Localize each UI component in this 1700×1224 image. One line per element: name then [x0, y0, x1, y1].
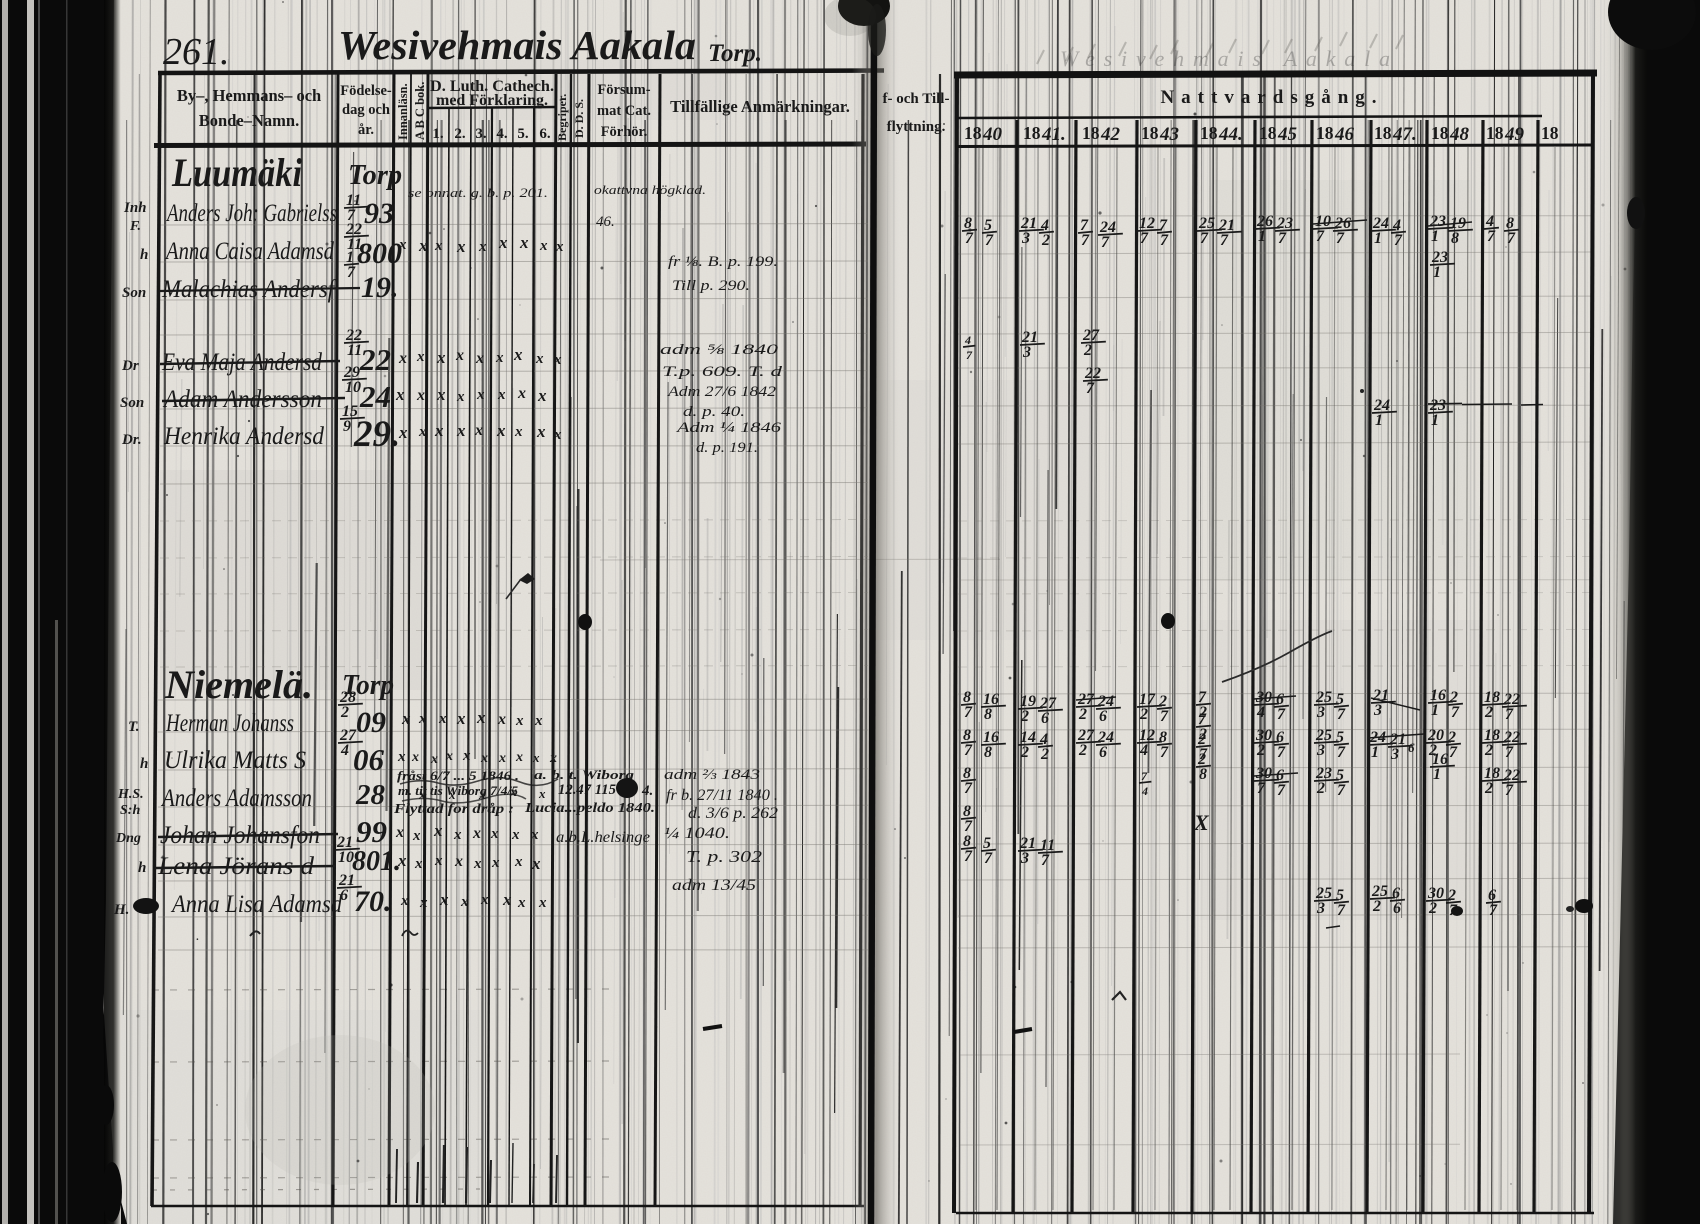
svg-text:18: 18 — [1374, 123, 1392, 143]
svg-text:99: 99 — [356, 814, 387, 849]
svg-text:x: x — [400, 893, 409, 909]
svg-text:x: x — [434, 853, 443, 869]
svg-text:Till p. 290.: Till p. 290. — [672, 278, 750, 294]
svg-text:7: 7 — [1141, 769, 1148, 783]
svg-text:1: 1 — [1374, 230, 1382, 247]
svg-text:Torp: Torp — [348, 159, 402, 191]
svg-text:x: x — [462, 748, 471, 764]
svg-text:med Förklaring.: med Förklaring. — [436, 92, 548, 109]
svg-text:x: x — [514, 854, 523, 870]
svg-text:261.: 261. — [163, 31, 230, 73]
svg-text:6: 6 — [340, 887, 348, 904]
svg-text:70.: 70. — [354, 885, 392, 918]
svg-text:T. p. 302: T. p. 302 — [686, 847, 763, 866]
svg-text:x: x — [397, 749, 406, 765]
svg-text:¼ 1040.: ¼ 1040. — [664, 825, 730, 842]
svg-text:7: 7 — [1220, 232, 1229, 249]
svg-text:7: 7 — [1257, 780, 1266, 797]
svg-text:3.: 3. — [475, 126, 487, 142]
svg-text:x: x — [416, 349, 425, 365]
svg-text:fr b. 27/11 1840 .: fr b. 27/11 1840 . — [666, 787, 778, 804]
svg-text:x: x — [534, 713, 543, 729]
svg-text:18: 18 — [1486, 123, 1504, 143]
svg-text:7: 7 — [1394, 232, 1403, 249]
svg-text:H.S.: H.S. — [117, 787, 144, 802]
svg-text:x: x — [478, 788, 486, 803]
svg-text:18: 18 — [1431, 123, 1449, 143]
svg-text:5.: 5. — [517, 126, 529, 142]
svg-text:2: 2 — [1040, 746, 1049, 763]
svg-text:06: 06 — [353, 742, 385, 777]
svg-text:29.: 29. — [353, 414, 400, 455]
svg-text:1: 1 — [1375, 412, 1383, 429]
svg-text:2: 2 — [1139, 706, 1148, 723]
svg-text:24: 24 — [359, 379, 391, 414]
svg-text:.: . — [196, 929, 200, 944]
svg-text:x: x — [418, 236, 428, 255]
svg-text:18: 18 — [1082, 123, 1100, 143]
svg-text:x: x — [473, 856, 482, 872]
svg-text:x: x — [509, 785, 517, 800]
svg-text:x: x — [495, 350, 504, 366]
svg-text:42: 42 — [1100, 124, 1121, 145]
svg-text:x: x — [530, 827, 539, 843]
svg-text:x: x — [513, 345, 523, 364]
svg-text:18: 18 — [964, 123, 982, 143]
svg-text:x: x — [414, 856, 423, 872]
svg-text:3: 3 — [1020, 850, 1029, 867]
svg-text:Herman Johanss: Herman Johanss — [165, 710, 294, 737]
svg-text:12.47 115: 12.47 115 — [558, 782, 616, 798]
svg-text:x: x — [497, 711, 506, 728]
svg-text:x: x — [474, 422, 483, 439]
svg-text:1: 1 — [1431, 702, 1439, 719]
svg-text:x: x — [436, 348, 446, 367]
svg-text:7: 7 — [1449, 744, 1458, 761]
svg-text:4: 4 — [964, 333, 971, 347]
svg-text:7: 7 — [966, 348, 973, 362]
svg-text:x: x — [539, 238, 548, 254]
svg-text:x: x — [480, 751, 488, 766]
svg-text:4: 4 — [1139, 742, 1148, 759]
svg-text:x: x — [455, 347, 464, 364]
svg-text:d. p. 40.: d. p. 40. — [683, 404, 745, 420]
svg-text:adm ⅔ 1843: adm ⅔ 1843 — [664, 767, 760, 783]
svg-text:46.: 46. — [596, 214, 615, 230]
svg-text:x: x — [436, 385, 446, 404]
svg-text:7: 7 — [1505, 706, 1514, 723]
svg-text:x: x — [555, 239, 564, 255]
svg-text:8: 8 — [1199, 766, 1207, 783]
svg-text:x: x — [478, 239, 487, 255]
svg-text:H.: H. — [113, 902, 129, 918]
svg-text:x: x — [538, 895, 547, 911]
svg-text:x: x — [497, 387, 506, 403]
svg-text:8: 8 — [984, 706, 992, 723]
svg-text:18: 18 — [1141, 123, 1159, 143]
svg-text:x: x — [514, 424, 523, 440]
svg-text:x: x — [475, 350, 484, 367]
svg-text:Anders Joh: Gabrielss: Anders Joh: Gabrielss — [165, 200, 337, 227]
svg-text:h: h — [140, 756, 148, 772]
svg-text:7: 7 — [1451, 704, 1460, 721]
svg-text:dag och: dag och — [342, 102, 390, 118]
svg-text:7: 7 — [1277, 744, 1286, 761]
svg-text:S:h: S:h — [120, 803, 140, 818]
svg-text:d. p. 191.: d. p. 191. — [696, 440, 758, 456]
svg-text:x: x — [536, 422, 546, 441]
svg-text:x: x — [433, 821, 443, 840]
svg-text:7: 7 — [1200, 230, 1209, 247]
svg-text:x: x — [418, 711, 427, 727]
svg-text:7: 7 — [1101, 234, 1110, 251]
svg-text:7: 7 — [1086, 380, 1095, 397]
svg-text:x: x — [439, 890, 449, 909]
svg-text:43: 43 — [1159, 124, 1179, 145]
svg-text:3: 3 — [1373, 702, 1382, 719]
svg-text:x: x — [418, 424, 427, 440]
svg-text:7: 7 — [1160, 708, 1169, 725]
svg-text:7: 7 — [1337, 902, 1346, 919]
svg-text:x: x — [418, 788, 426, 803]
svg-text:x: x — [434, 238, 443, 254]
svg-text:7: 7 — [1505, 782, 1514, 799]
svg-text:7: 7 — [1278, 230, 1287, 247]
svg-text:x: x — [498, 233, 508, 252]
svg-text:x: x — [395, 385, 405, 404]
svg-text:x: x — [456, 237, 466, 256]
svg-text:801.: 801. — [352, 846, 401, 877]
svg-text:93: 93 — [364, 197, 394, 230]
svg-text:Ulrika Matts S: Ulrika Matts S — [164, 747, 306, 774]
svg-text:adm ⅝ 1840: adm ⅝ 1840 — [660, 342, 779, 358]
svg-text:7: 7 — [1336, 230, 1345, 247]
svg-text:7: 7 — [1081, 232, 1090, 249]
svg-text:se onnat. g. b. p. 201.: se onnat. g. b. p. 201. — [408, 185, 548, 200]
svg-text:3: 3 — [1022, 344, 1031, 361]
svg-text:2: 2 — [1078, 706, 1087, 723]
svg-text:Adm ¼ 1846: Adm ¼ 1846 — [676, 420, 782, 436]
svg-text:x: x — [480, 892, 489, 908]
svg-text:7: 7 — [1505, 744, 1514, 761]
svg-text:x: x — [515, 713, 524, 729]
svg-text:Niemelä.: Niemelä. — [164, 662, 313, 707]
svg-text:2: 2 — [1484, 704, 1493, 721]
svg-text:800: 800 — [357, 237, 402, 270]
svg-text:7: 7 — [1337, 706, 1346, 723]
svg-text:49: 49 — [1504, 124, 1525, 145]
svg-text:d. 3/6 p. 262: d. 3/6 p. 262 — [688, 805, 778, 822]
svg-text:7: 7 — [984, 850, 993, 867]
svg-text:x: x — [434, 421, 444, 440]
svg-text:f- och Till-: f- och Till- — [883, 91, 950, 107]
svg-text:7: 7 — [964, 704, 973, 721]
svg-text:Henrika Andersd: Henrika Andersd — [163, 423, 324, 450]
svg-text:7: 7 — [1140, 230, 1149, 247]
svg-text:46: 46 — [1334, 124, 1355, 145]
svg-text:3: 3 — [1316, 900, 1325, 917]
svg-text:4: 4 — [340, 742, 349, 759]
svg-text:x: x — [438, 711, 447, 727]
svg-text:x: x — [496, 421, 506, 440]
svg-text:18: 18 — [1200, 123, 1218, 143]
svg-text:3: 3 — [1021, 230, 1030, 247]
svg-text:x: x — [538, 786, 546, 801]
svg-text:x: x — [416, 387, 425, 404]
svg-text:2: 2 — [1484, 780, 1493, 797]
svg-text:18: 18 — [1259, 123, 1277, 143]
svg-text:Wesivehmais Aakala: Wesivehmais Aakala — [338, 22, 696, 68]
svg-text:x: x — [532, 750, 540, 765]
svg-text:x: x — [502, 890, 512, 909]
svg-text:a. b. t. Wiborg: a. b. t. Wiborg — [534, 767, 635, 782]
svg-text:h: h — [138, 860, 146, 876]
svg-text:7: 7 — [1160, 232, 1169, 249]
svg-text:x: x — [515, 750, 523, 765]
svg-text:x: x — [398, 350, 407, 367]
svg-text:2: 2 — [1484, 742, 1493, 759]
svg-text:7: 7 — [1489, 902, 1498, 919]
svg-text:F.: F. — [129, 219, 141, 234]
svg-text:47.: 47. — [1392, 124, 1417, 145]
svg-text:x: x — [553, 352, 562, 368]
svg-text:19.: 19. — [361, 271, 399, 304]
svg-text:7: 7 — [1041, 852, 1050, 869]
svg-text:Nattvardsgång.: Nattvardsgång. — [1160, 87, 1383, 108]
svg-text:x: x — [448, 787, 456, 802]
svg-text:2: 2 — [1041, 232, 1050, 249]
svg-text:Dr: Dr — [121, 358, 139, 374]
svg-text:x: x — [491, 855, 500, 871]
svg-text:Innanläsn.: Innanläsn. — [396, 83, 410, 140]
svg-text:7: 7 — [985, 232, 994, 249]
svg-text:x: x — [519, 233, 529, 252]
svg-text:Försum-: Försum- — [597, 82, 650, 98]
svg-text:Begriper.: Begriper. — [555, 94, 569, 141]
svg-text:Dr.: Dr. — [121, 432, 142, 448]
svg-text:x: x — [456, 421, 466, 440]
svg-text:Flyttad for dråp :: Flyttad for dråp : — [393, 802, 514, 817]
svg-text:2: 2 — [1428, 900, 1437, 917]
svg-text:6: 6 — [1041, 710, 1049, 727]
svg-text:6: 6 — [1408, 740, 1415, 755]
svg-text:Anna Lisa Adamsd: Anna Lisa Adamsd — [170, 891, 342, 918]
svg-text:8: 8 — [1451, 230, 1459, 247]
svg-text:x: x — [531, 854, 541, 873]
svg-text:9: 9 — [343, 418, 351, 435]
svg-text:adm 13/45: adm 13/45 — [672, 877, 756, 894]
svg-text:7: 7 — [964, 848, 973, 865]
svg-text:2: 2 — [1316, 780, 1325, 797]
svg-text:1: 1 — [1371, 744, 1379, 761]
svg-text:Lucia...peldo 1840.: Lucia...peldo 1840. — [524, 801, 655, 816]
svg-text:1: 1 — [1431, 412, 1439, 429]
svg-text:1: 1 — [1433, 766, 1441, 783]
svg-text:6.: 6. — [539, 126, 551, 142]
svg-text:09: 09 — [356, 706, 386, 739]
svg-text:48: 48 — [1449, 124, 1470, 145]
svg-text:Förhör.: Förhör. — [601, 124, 648, 140]
svg-text:7: 7 — [1337, 744, 1346, 761]
svg-text:x: x — [476, 708, 486, 727]
svg-text:år.: år. — [358, 122, 374, 138]
svg-text:2: 2 — [1372, 898, 1381, 915]
svg-text:fr ⅛. B. p. 199.: fr ⅛. B. p. 199. — [668, 254, 778, 270]
svg-text:x: x — [453, 827, 462, 843]
svg-text:x: x — [517, 895, 526, 911]
svg-text:2: 2 — [340, 704, 349, 721]
svg-text:2: 2 — [1078, 742, 1087, 759]
svg-text:2: 2 — [1020, 744, 1029, 761]
svg-text:A B C bok.: A B C bok. — [413, 82, 427, 140]
svg-text:x: x — [398, 237, 407, 253]
svg-text:2: 2 — [1256, 742, 1265, 759]
svg-text:x: x — [445, 749, 453, 764]
svg-text:x: x — [537, 386, 547, 405]
svg-text:2: 2 — [1020, 708, 1029, 725]
svg-text:x: x — [395, 824, 404, 841]
svg-text:7: 7 — [1277, 706, 1286, 723]
svg-text:4.: 4. — [641, 783, 653, 799]
svg-text:7: 7 — [1316, 228, 1325, 245]
svg-text:x: x — [411, 750, 419, 765]
svg-text:8: 8 — [984, 744, 992, 761]
svg-text:x: x — [549, 751, 557, 766]
svg-text:x: x — [517, 385, 526, 402]
svg-text:4.: 4. — [496, 126, 508, 142]
svg-text:7: 7 — [347, 264, 356, 281]
svg-text:x: x — [430, 752, 438, 767]
svg-text:x: x — [419, 895, 428, 911]
svg-text:T.: T. — [128, 719, 140, 735]
svg-text:1: 1 — [1433, 264, 1441, 281]
svg-text:7: 7 — [1487, 228, 1496, 245]
svg-text:28: 28 — [355, 779, 386, 811]
svg-text:X: X — [1193, 810, 1210, 835]
svg-text:18: 18 — [1316, 123, 1334, 143]
svg-text:40: 40 — [982, 124, 1003, 145]
svg-text:x: x — [397, 851, 407, 870]
svg-text:Anders Adamsson: Anders Adamsson — [160, 785, 312, 812]
svg-text:7: 7 — [964, 742, 973, 759]
svg-text:18: 18 — [1023, 123, 1041, 143]
svg-text:6: 6 — [1099, 744, 1107, 761]
svg-text:Son: Son — [122, 285, 146, 301]
svg-text:x: x — [476, 387, 485, 403]
svg-text:44.: 44. — [1218, 124, 1243, 145]
svg-text:7: 7 — [1277, 782, 1286, 799]
svg-text:18: 18 — [1541, 123, 1559, 143]
svg-text:okattvna högklad.: okattvna högklad. — [594, 182, 706, 197]
svg-text:h: h — [140, 247, 148, 263]
svg-text:7: 7 — [1507, 230, 1516, 247]
svg-text:2: 2 — [1083, 342, 1092, 359]
svg-text:2.: 2. — [454, 126, 466, 142]
svg-text:x: x — [412, 828, 421, 844]
svg-text:flyttning.: flyttning. — [887, 119, 946, 135]
svg-text:x: x — [535, 351, 544, 367]
svg-text:7: 7 — [964, 780, 973, 797]
svg-text:41.: 41. — [1041, 124, 1066, 145]
svg-text:10: 10 — [345, 379, 361, 396]
svg-text:Adm 27/6 1842: Adm 27/6 1842 — [667, 384, 777, 400]
svg-text:Bonde–Namn.: Bonde–Namn. — [199, 111, 299, 130]
svg-text:Anna Caisa Adamsd: Anna Caisa Adamsd — [164, 238, 334, 265]
svg-text:x: x — [553, 427, 562, 443]
svg-text:1: 1 — [1431, 228, 1439, 245]
svg-text:x: x — [401, 709, 411, 728]
svg-text:7: 7 — [1160, 744, 1169, 761]
svg-text:x: x — [460, 894, 469, 910]
svg-text:1: 1 — [1258, 228, 1266, 245]
svg-text:x: x — [498, 751, 506, 766]
svg-text:By–, Hemmans– och: By–, Hemmans– och — [177, 86, 321, 105]
svg-text:mat Cat.: mat Cat. — [597, 103, 651, 119]
svg-text:4: 4 — [1141, 784, 1148, 798]
svg-text:Tillfällige Anmärkningar.: Tillfällige Anmärkningar. — [670, 97, 850, 116]
svg-text:Luumäki: Luumäki — [171, 150, 302, 195]
svg-text:x: x — [456, 709, 466, 728]
svg-text:x: x — [511, 827, 520, 843]
svg-text:4: 4 — [1256, 704, 1265, 721]
svg-text:x: x — [490, 826, 499, 842]
svg-text:Torp.: Torp. — [708, 40, 762, 67]
svg-text:3: 3 — [1316, 704, 1325, 721]
svg-text:a.b.L.helsinge: a.b.L.helsinge — [556, 829, 650, 846]
svg-text:x: x — [472, 825, 481, 842]
svg-text:7: 7 — [1337, 782, 1346, 799]
svg-text:Son: Son — [120, 395, 144, 411]
svg-text:T.p. 609. T. d: T.p. 609. T. d — [662, 364, 783, 380]
svg-text:Inh: Inh — [123, 200, 147, 216]
svg-text:Födelse-: Födelse- — [340, 83, 392, 99]
svg-text:22: 22 — [359, 342, 391, 377]
svg-text:Dng: Dng — [115, 831, 141, 846]
svg-text:45: 45 — [1277, 124, 1298, 145]
svg-text:6: 6 — [1393, 900, 1401, 917]
svg-text:x: x — [456, 389, 465, 405]
svg-text:x: x — [454, 853, 463, 870]
svg-text:7: 7 — [965, 230, 974, 247]
svg-text:1.: 1. — [432, 126, 444, 142]
svg-text:x: x — [398, 423, 408, 442]
svg-text:3: 3 — [1316, 742, 1325, 759]
svg-text:3: 3 — [1390, 746, 1399, 763]
svg-text:D. D. S.: D. D. S. — [572, 99, 586, 138]
svg-text:6: 6 — [1099, 708, 1107, 725]
